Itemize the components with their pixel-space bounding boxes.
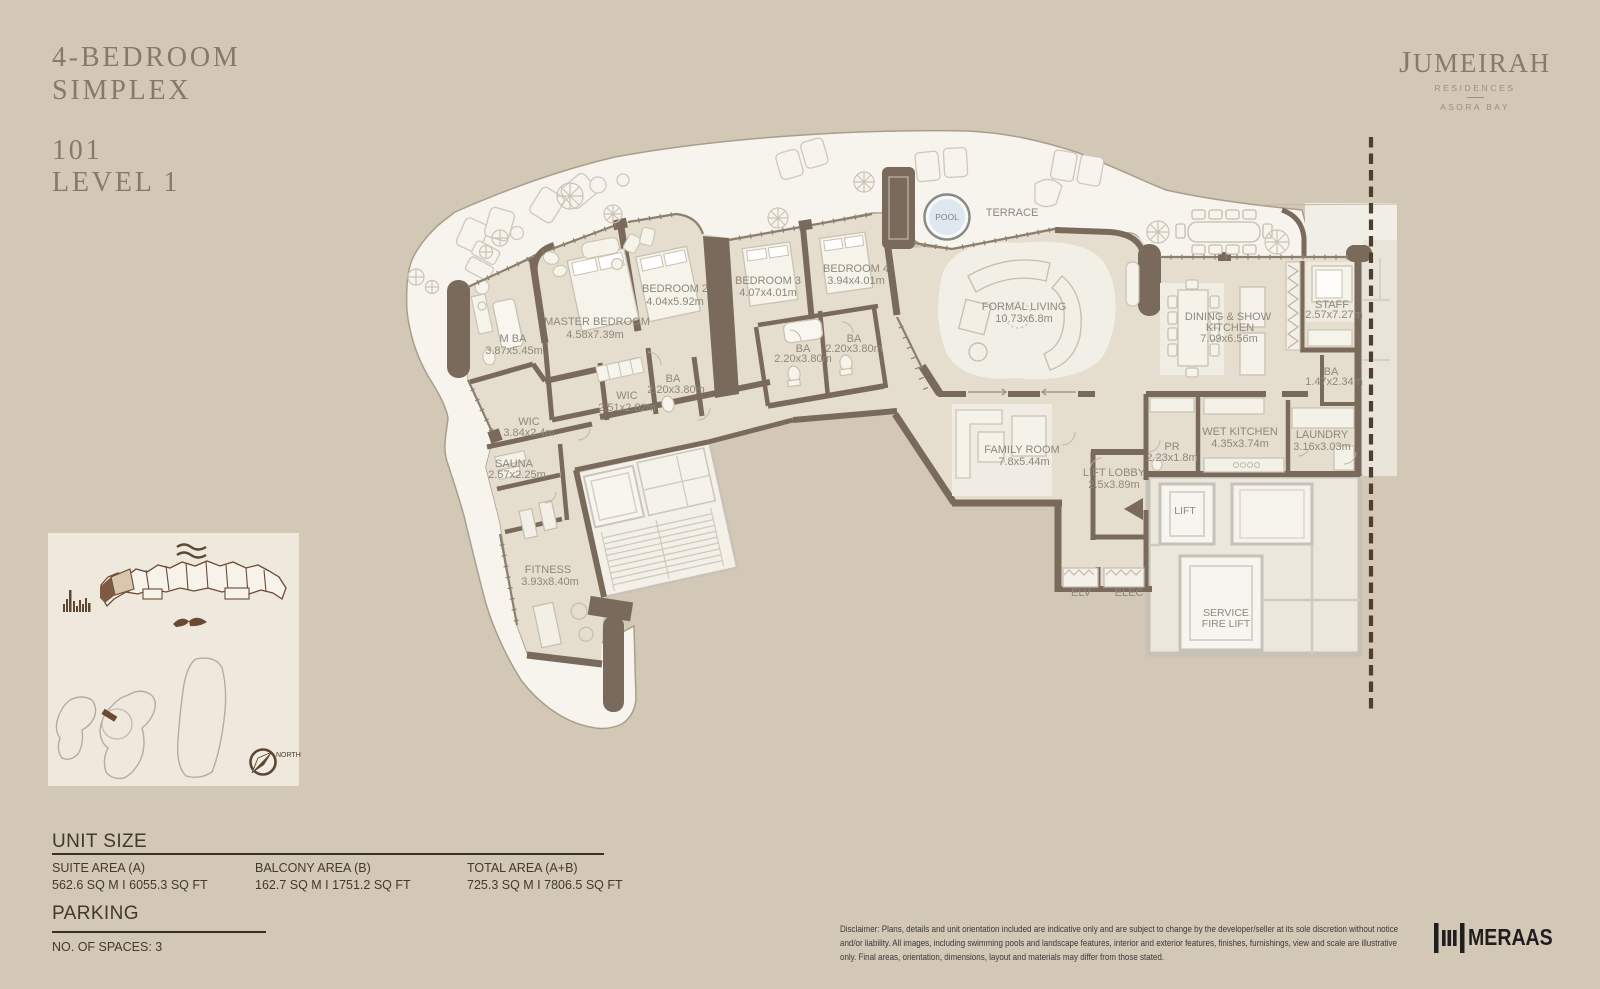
svg-text:BEDROOM 3: BEDROOM 3	[735, 275, 801, 287]
svg-text:3.16x3.03m: 3.16x3.03m	[1293, 441, 1350, 453]
svg-text:BEDROOM 2: BEDROOM 2	[642, 283, 708, 295]
svg-text:POOL: POOL	[935, 212, 959, 222]
svg-text:2.51x2.82m: 2.51x2.82m	[598, 402, 655, 414]
svg-text:ELV: ELV	[1071, 587, 1092, 599]
svg-text:WET KITCHEN: WET KITCHEN	[1202, 426, 1278, 438]
svg-text:LIFT: LIFT	[1174, 505, 1196, 517]
svg-text:BEDROOM 4: BEDROOM 4	[823, 263, 889, 275]
svg-text:4.35x3.74m: 4.35x3.74m	[1211, 438, 1268, 450]
svg-text:1.47x2.34m: 1.47x2.34m	[1305, 376, 1362, 388]
svg-text:3.84x2.4m: 3.84x2.4m	[503, 427, 554, 439]
svg-text:FORMAL LIVING: FORMAL LIVING	[982, 301, 1067, 313]
svg-text:2.20x3.80m: 2.20x3.80m	[774, 353, 831, 365]
svg-text:LIFT LOBBY: LIFT LOBBY	[1083, 467, 1146, 479]
svg-text:M BA: M BA	[500, 333, 528, 345]
svg-text:2.5x3.89m: 2.5x3.89m	[1088, 479, 1139, 491]
svg-text:2.20x3.80m: 2.20x3.80m	[825, 343, 882, 355]
svg-text:3.87x5.45m: 3.87x5.45m	[485, 345, 542, 357]
svg-text:LAUNDRY: LAUNDRY	[1296, 429, 1349, 441]
svg-text:2.20x3.80m: 2.20x3.80m	[647, 384, 704, 396]
svg-text:NORTH: NORTH	[276, 752, 301, 759]
svg-text:FIRE LIFT: FIRE LIFT	[1202, 618, 1251, 630]
svg-text:WIC: WIC	[616, 390, 637, 402]
svg-text:7.09x6.56m: 7.09x6.56m	[1200, 333, 1257, 345]
svg-text:TERRACE: TERRACE	[986, 207, 1039, 219]
svg-text:4.58x7.39m: 4.58x7.39m	[566, 329, 623, 341]
svg-text:ELEC: ELEC	[1115, 587, 1144, 599]
svg-text:4.07x4.01m: 4.07x4.01m	[739, 287, 796, 299]
svg-text:7.8x5.44m: 7.8x5.44m	[998, 456, 1049, 468]
svg-text:3.93x8.40m: 3.93x8.40m	[521, 576, 578, 588]
svg-text:FITNESS: FITNESS	[525, 564, 571, 576]
svg-text:2.57x7.27m: 2.57x7.27m	[1305, 309, 1362, 321]
svg-text:FAMILY ROOM: FAMILY ROOM	[984, 444, 1059, 456]
svg-text:2.57x2.25m: 2.57x2.25m	[488, 469, 545, 481]
svg-text:10.73x6.8m: 10.73x6.8m	[995, 313, 1052, 325]
svg-text:2.23x1.8m: 2.23x1.8m	[1146, 452, 1197, 464]
svg-text:MASTER BEDROOM: MASTER BEDROOM	[544, 316, 650, 328]
svg-text:4.04x5.92m: 4.04x5.92m	[646, 296, 703, 308]
svg-text:3.94x4.01m: 3.94x4.01m	[827, 275, 884, 287]
